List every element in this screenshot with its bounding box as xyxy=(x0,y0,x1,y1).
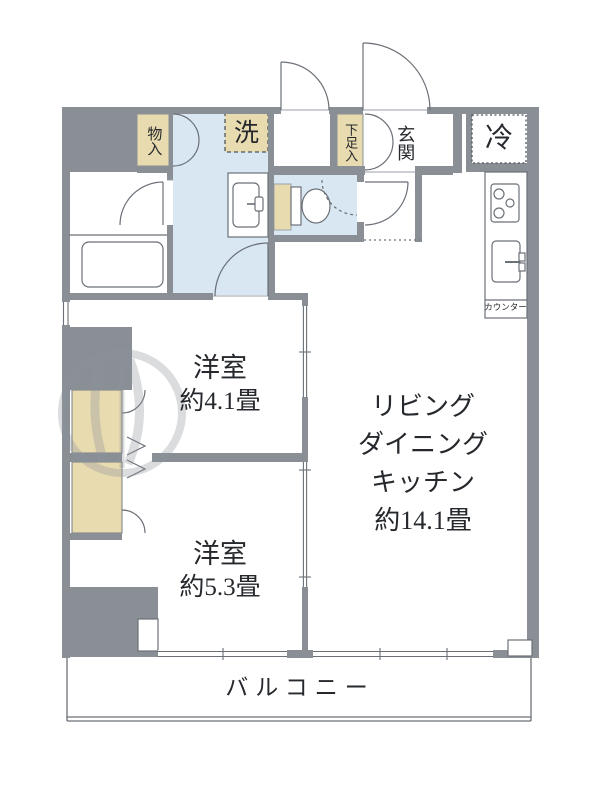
label-bedroom-b: 洋室 約5.3畳 xyxy=(110,538,330,603)
ldk-size: 約14.1畳 xyxy=(318,502,528,540)
label-refrigerator: 冷 xyxy=(472,121,526,156)
trunk-room-door xyxy=(281,62,329,110)
stove-icon xyxy=(491,184,519,222)
entrance-door xyxy=(363,43,430,110)
bedroom-b-size: 約5.3畳 xyxy=(110,572,330,603)
bathtub xyxy=(82,242,163,287)
label-balcony: バルコニー xyxy=(130,674,470,703)
kitchen xyxy=(485,172,527,318)
sink-icon xyxy=(492,241,525,282)
label-entrance: 玄関 xyxy=(363,114,447,172)
label-bedroom-a: 洋室 約4.1畳 xyxy=(110,352,330,417)
hall-ldk-door xyxy=(365,182,408,225)
washbasin xyxy=(228,173,268,237)
label-washer: 洗 xyxy=(225,118,268,149)
bathroom-door-arc xyxy=(120,182,163,225)
ldk-line1: リビング xyxy=(318,388,528,426)
ldk-line3: キッチン xyxy=(318,464,528,502)
label-counter: カウンター xyxy=(483,302,528,313)
bedroom-b-name: 洋室 xyxy=(110,538,330,572)
label-storage: 物入 xyxy=(137,116,169,166)
bedroom-a-size: 約4.1畳 xyxy=(110,386,330,417)
balcony-end-box xyxy=(508,640,532,656)
bedroom-a-name: 洋室 xyxy=(110,352,330,386)
bathroom xyxy=(69,182,167,287)
label-shoe-storage: 下足入 xyxy=(337,116,363,169)
sw-block-notch xyxy=(138,619,158,651)
ldk-line2: ダイニング xyxy=(318,426,528,464)
floor-plan: 物入 洗 下足入 玄関 冷 カウンター 洋室 約4.1畳 洋室 約5.3畳 リビ… xyxy=(0,0,600,800)
label-ldk: リビング ダイニング キッチン 約14.1畳 xyxy=(318,388,528,540)
